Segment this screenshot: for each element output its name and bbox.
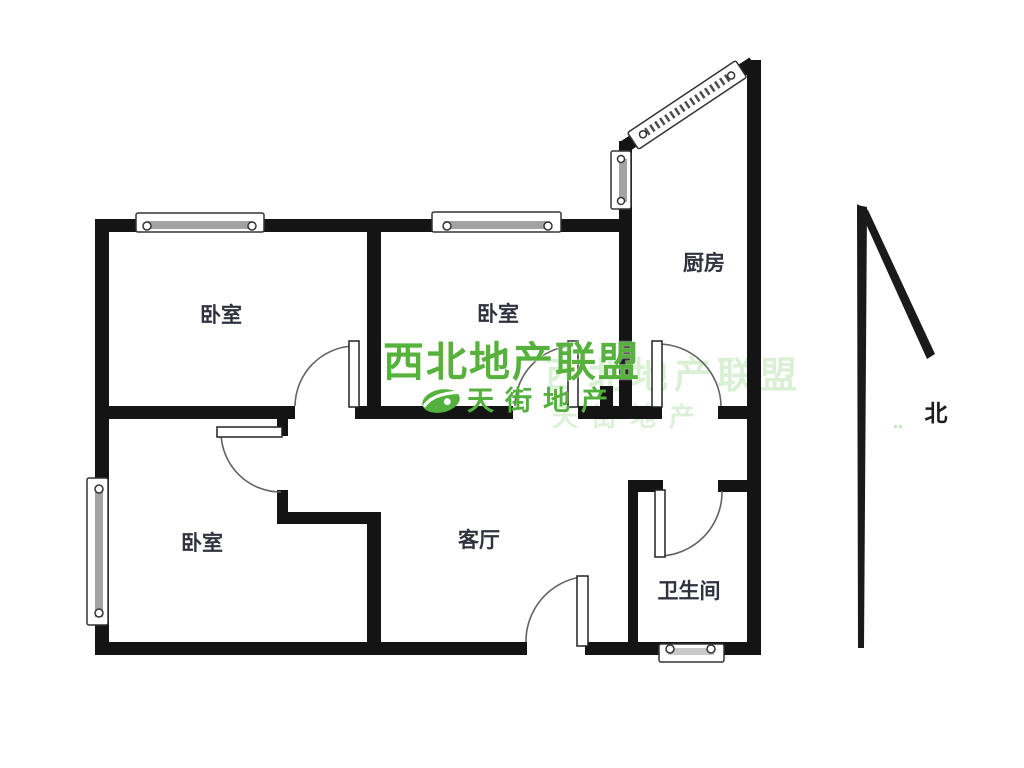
label-living-room: 客厅	[458, 528, 500, 552]
window-bathroom	[659, 644, 724, 662]
wall-bath-left	[628, 480, 638, 655]
window-bedroom-top-left	[136, 213, 264, 232]
wall-right	[747, 60, 761, 655]
wall-mid-d	[718, 406, 759, 419]
wall-step-horizontal	[277, 512, 381, 524]
wall-living-divider	[367, 515, 381, 655]
window-kitchen-left	[611, 151, 631, 209]
north-arrow-diagonal-line	[857, 204, 935, 359]
door-bedroom-bottom-left	[217, 427, 282, 492]
window-bedroom-bottom-left	[87, 478, 108, 625]
floor-plan-page: 西北地产联盟 天街地产 ..	[0, 0, 1024, 768]
wall-mid-a	[95, 406, 295, 419]
watermark-title: 西北地产联盟	[383, 342, 641, 383]
wall-bottom-mid	[585, 642, 628, 655]
label-bedroom-bottom-left: 卧室	[181, 531, 223, 555]
wall-bath-top-right	[718, 480, 759, 492]
window-bedroom-top-middle	[432, 212, 561, 232]
tianjie-logo-icon	[420, 386, 462, 416]
north-arrow-vertical-line	[857, 205, 867, 648]
label-bedroom-top-left: 卧室	[200, 303, 242, 327]
label-kitchen: 厨房	[683, 251, 725, 275]
ghost-watermark-dots: ..	[893, 412, 903, 432]
door-entry	[526, 576, 588, 646]
window-kitchen-diagonal	[627, 61, 746, 150]
label-bathroom: 卫生间	[658, 579, 721, 603]
wall-bottom-left	[95, 642, 527, 655]
door-bedroom-top-left	[295, 341, 359, 407]
door-bathroom	[655, 490, 722, 557]
wall-bedroom-divider-top	[367, 219, 381, 418]
watermark-subtitle: 天街地产	[467, 388, 619, 415]
north-label: 北	[925, 400, 948, 426]
label-bedroom-top-middle: 卧室	[477, 302, 519, 326]
watermark-subtitle-row: 天街地产	[420, 386, 619, 416]
